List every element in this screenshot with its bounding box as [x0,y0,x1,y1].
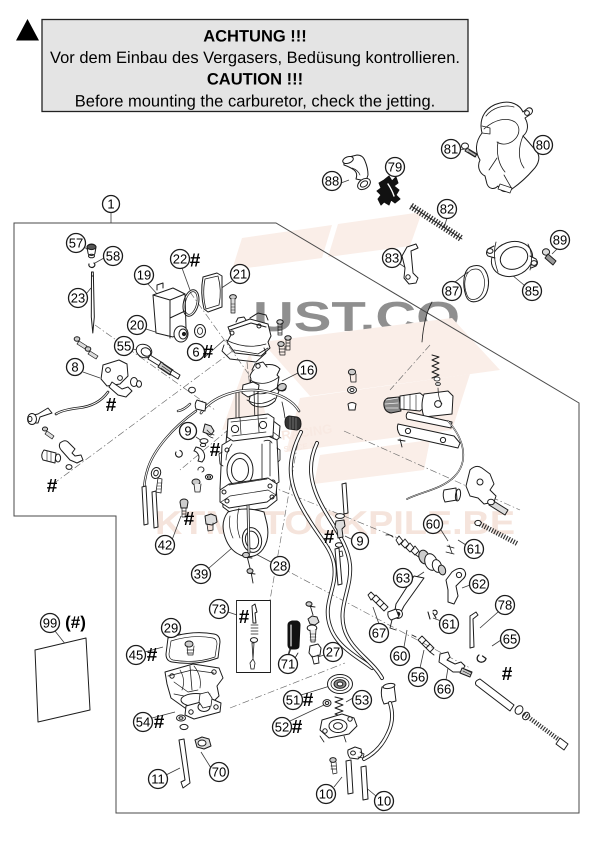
svg-text:#: # [502,664,513,685]
svg-text:85: 85 [525,284,539,299]
svg-text:54: 54 [136,715,150,730]
svg-text:Before mounting the carburetor: Before mounting the carburetor, check th… [75,93,435,111]
svg-text:51: 51 [286,693,300,708]
svg-text:70: 70 [212,765,226,780]
svg-text:#: # [184,509,195,530]
svg-text:66: 66 [437,682,451,697]
svg-text:9: 9 [356,534,363,549]
svg-text:#: # [210,440,221,461]
svg-text:60: 60 [426,517,440,532]
svg-text:20: 20 [130,318,144,333]
svg-text:81: 81 [444,142,458,157]
svg-text:52: 52 [275,720,289,735]
svg-text:Vor dem Einbau des Vergasers,: Vor dem Einbau des Vergasers, Bedüsung k… [50,49,460,67]
svg-text:11: 11 [151,772,165,787]
svg-text:8: 8 [71,360,78,375]
svg-text:65: 65 [503,632,517,647]
svg-text:53: 53 [355,693,369,708]
svg-text:79: 79 [388,160,402,175]
svg-text:#: # [239,607,250,628]
svg-text:42: 42 [158,538,172,553]
svg-text:#: # [106,395,117,416]
svg-text:10: 10 [377,794,391,809]
svg-text:16: 16 [300,363,314,378]
svg-text:73: 73 [212,602,226,617]
svg-text:#: # [203,342,214,363]
svg-text:45: 45 [129,648,143,663]
svg-text:#: # [154,712,165,733]
svg-text:22: 22 [173,252,187,267]
svg-text:28: 28 [273,559,287,574]
svg-text:(#): (#) [65,613,86,632]
svg-text:62: 62 [472,577,486,592]
svg-text:#: # [292,717,303,738]
svg-text:60: 60 [393,649,407,664]
svg-text:23: 23 [71,291,85,306]
svg-text:61: 61 [467,542,481,557]
svg-text:87: 87 [445,284,459,299]
svg-text:CAUTION !!!: CAUTION !!! [207,71,303,89]
svg-text:#: # [190,251,201,272]
svg-text:55: 55 [117,339,131,354]
svg-text:#: # [324,527,335,548]
svg-text:71: 71 [281,657,295,672]
svg-text:83: 83 [385,251,399,266]
svg-text:19: 19 [137,268,151,283]
svg-text:#: # [147,645,158,666]
svg-text:21: 21 [233,267,247,282]
svg-text:#: # [303,690,314,711]
svg-text:27: 27 [326,645,340,660]
svg-text:29: 29 [164,621,178,636]
svg-text:ACHTUNG !!!: ACHTUNG !!! [203,28,307,46]
svg-text:9: 9 [184,424,191,439]
svg-text:1: 1 [107,197,114,212]
svg-text:99: 99 [43,616,57,631]
svg-text:78: 78 [498,598,512,613]
svg-text:10: 10 [319,787,333,802]
svg-text:58: 58 [106,249,120,264]
svg-text:89: 89 [553,233,567,248]
svg-text:#: # [47,476,58,497]
svg-text:67: 67 [372,626,386,641]
svg-text:56: 56 [411,670,425,685]
svg-text:82: 82 [440,202,454,217]
svg-text:88: 88 [325,174,339,189]
svg-text:39: 39 [194,567,208,582]
svg-text:57: 57 [69,236,83,251]
svg-text:63: 63 [396,571,410,586]
svg-text:6: 6 [192,345,199,360]
svg-text:61: 61 [442,617,456,632]
svg-text:80: 80 [536,138,550,153]
